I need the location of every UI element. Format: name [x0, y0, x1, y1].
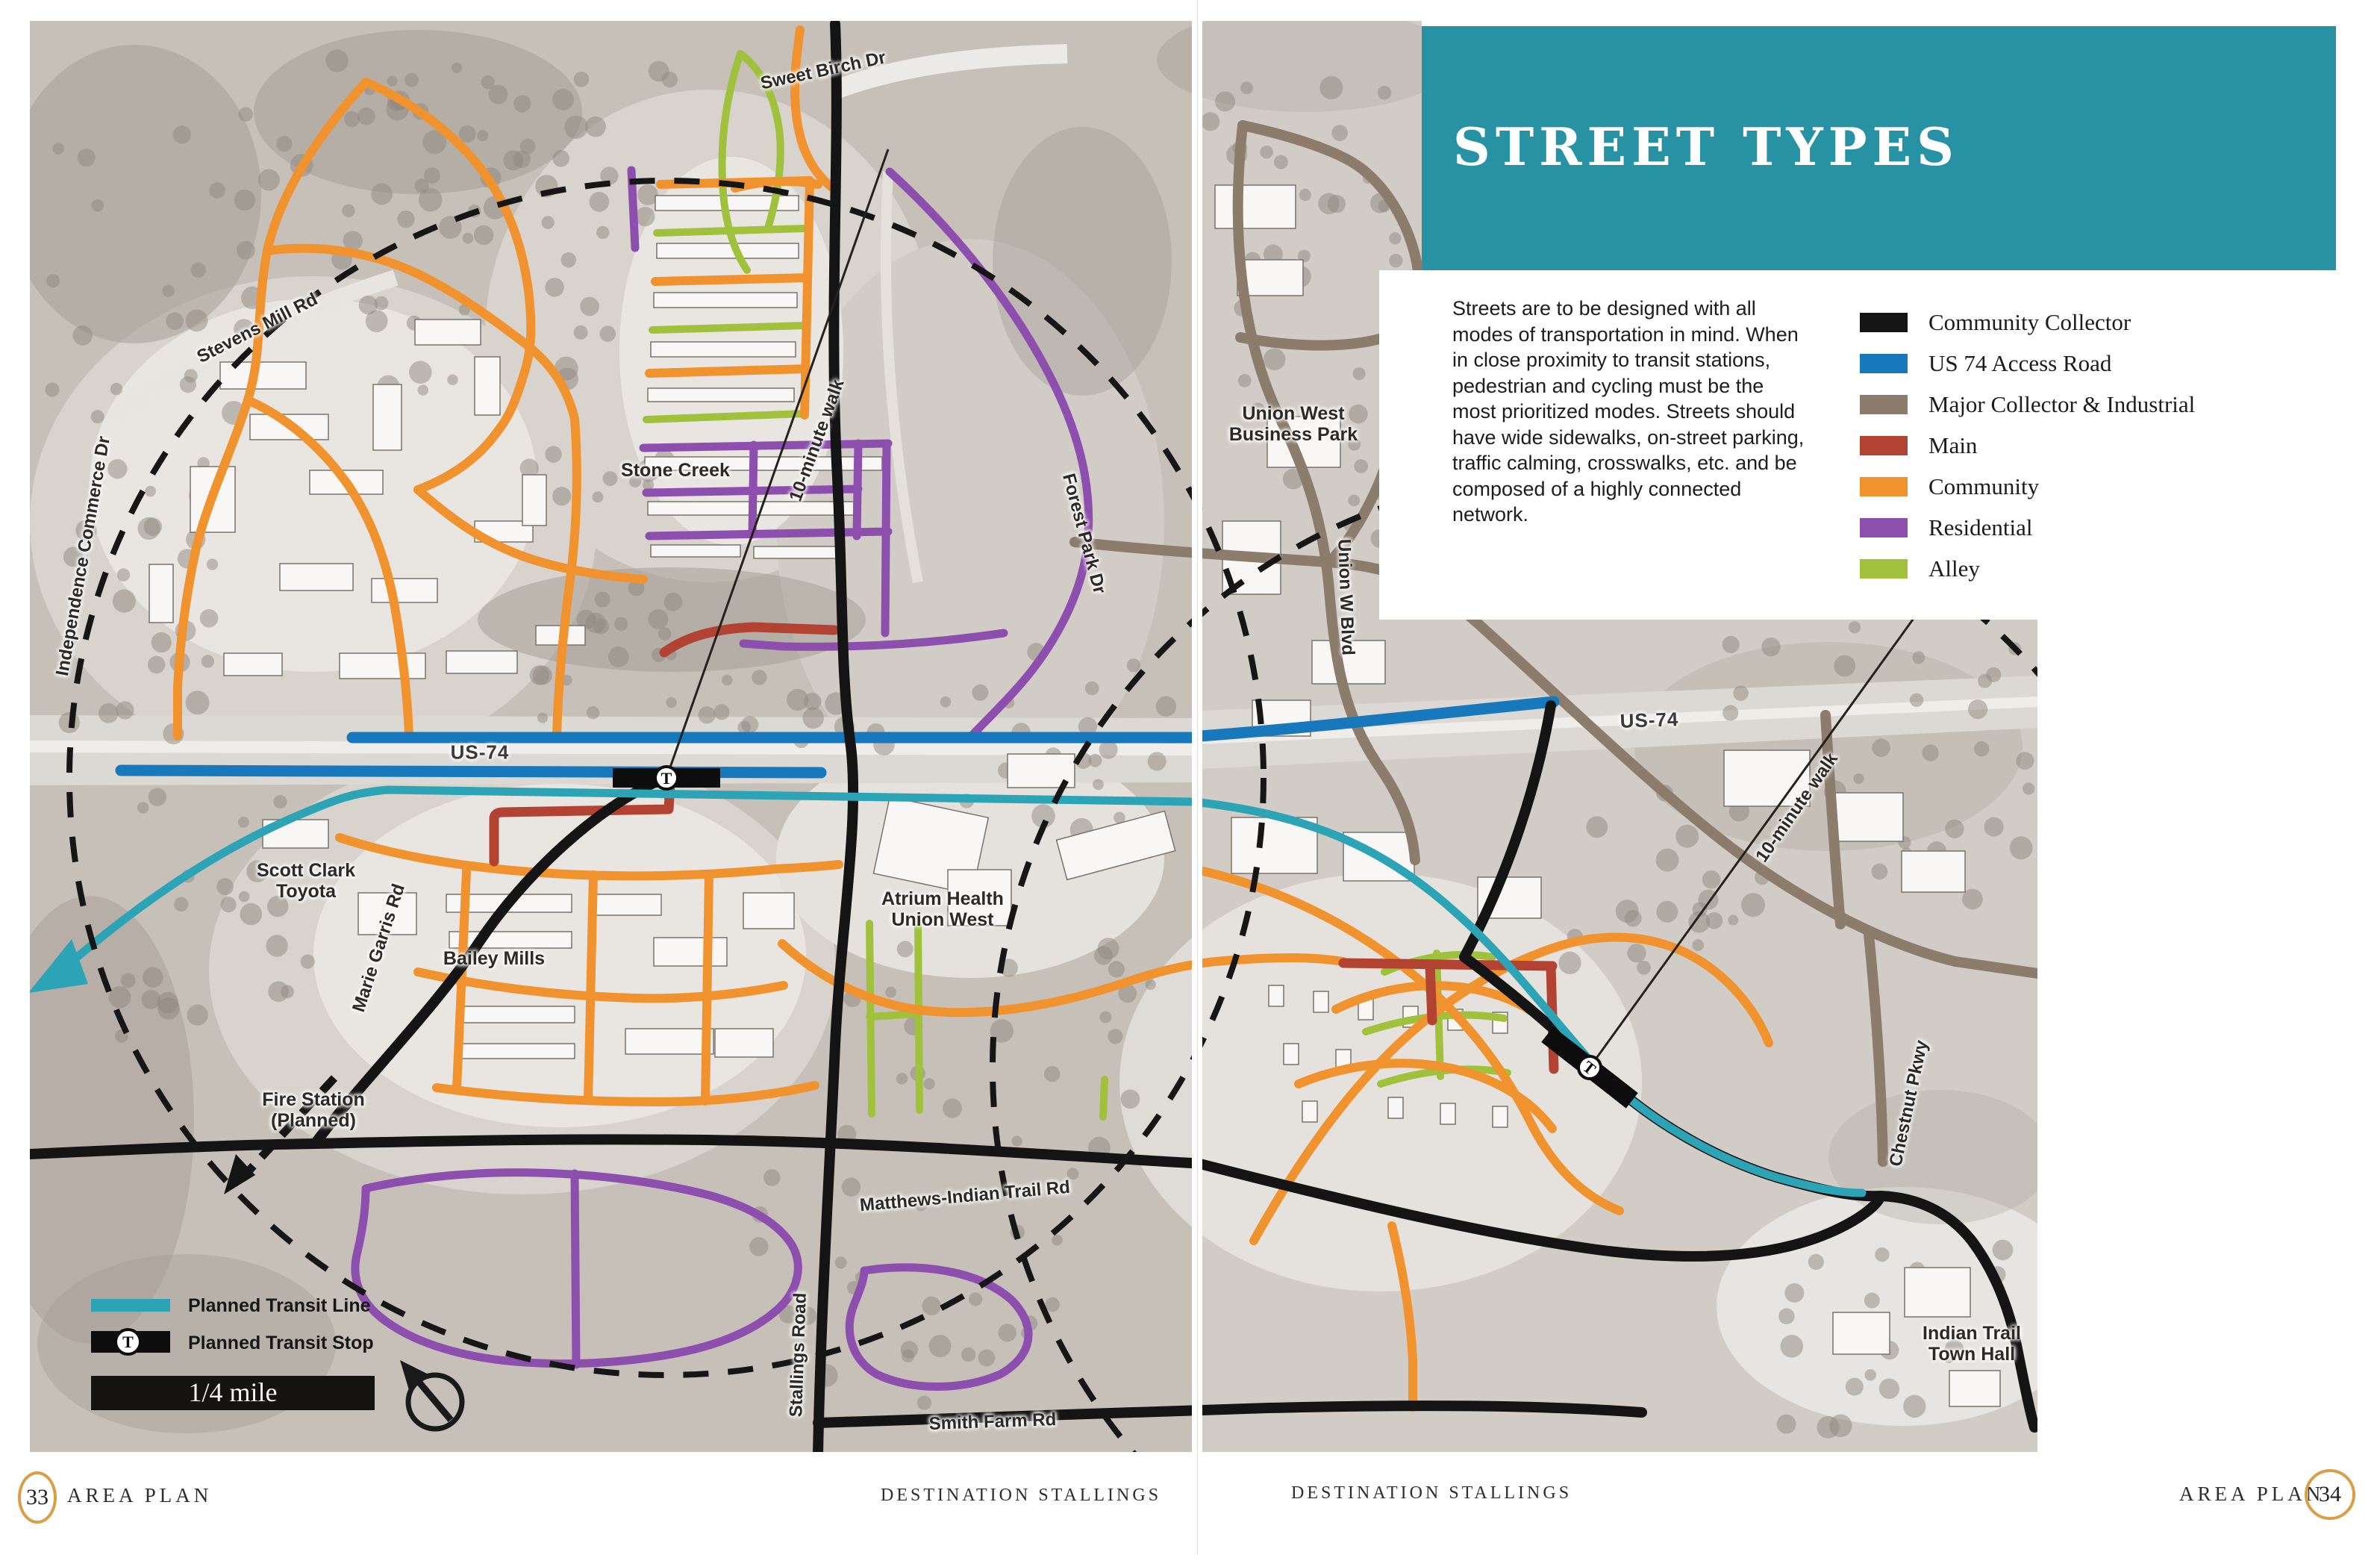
map-label: Indian TrailTown Hall — [1923, 1323, 2021, 1365]
header-panel: STREET TYPES — [1422, 26, 2336, 270]
area-plan-spread: { "header": { "title": "STREET TYPES", "… — [0, 0, 2380, 1555]
legend-swatch — [1860, 518, 1908, 537]
footer-right-label: AREA PLAN — [2179, 1483, 2324, 1506]
map-label: Smith Farm Rd — [928, 1409, 1057, 1435]
legend-item-main: Main — [1860, 425, 2195, 466]
page-number-right: 34 — [2305, 1469, 2355, 1520]
legend-item-alley: Alley — [1860, 548, 2195, 589]
legend-swatch — [1860, 313, 1908, 332]
page-gutter — [1192, 0, 1202, 1555]
page-title: STREET TYPES — [1453, 117, 1959, 178]
transit-stop-label: Planned Transit Stop — [188, 1333, 374, 1354]
page-number-left: 33 — [18, 1471, 57, 1524]
transit-line-label: Planned Transit Line — [188, 1295, 371, 1317]
legend-label: Major Collector & Industrial — [1928, 391, 2195, 418]
legend-label: Alley — [1928, 555, 1980, 582]
map-label: Union W Blvd — [1333, 539, 1358, 656]
scale-bar: 1/4 mile — [91, 1376, 375, 1410]
transit-stop-icon: T — [114, 1328, 142, 1356]
legend-item-community: Community — [1860, 466, 2195, 507]
footer-center-left: DESTINATION STALLINGS — [881, 1486, 1161, 1506]
legend-item-us74: US 74 Access Road — [1860, 343, 2195, 384]
map-label: US-74 — [1620, 708, 1679, 733]
legend-label: US 74 Access Road — [1928, 350, 2111, 377]
legend-swatch — [1860, 395, 1908, 414]
map-label: Fire Station(Planned) — [262, 1089, 365, 1131]
description-paragraph: Streets are to be designed with all mode… — [1452, 296, 1809, 528]
legend-swatch — [1860, 436, 1908, 455]
map-label: Atrium HealthUnion West — [881, 888, 1004, 930]
street-type-legend: Community CollectorUS 74 Access RoadMajo… — [1860, 302, 2195, 589]
map-label: Stallings Road — [786, 1292, 811, 1418]
footer-left-label: AREA PLAN — [67, 1484, 212, 1507]
transit-stop-icon: T — [613, 767, 720, 789]
legend-item-major: Major Collector & Industrial — [1860, 384, 2195, 425]
map-label: Scott ClarkToyota — [257, 860, 355, 902]
legend-label: Community Collector — [1928, 309, 2131, 336]
transit-line-swatch — [91, 1299, 170, 1312]
map-label: Stone Creek — [621, 460, 730, 481]
legend-label: Residential — [1928, 514, 2032, 541]
footer-center-right: DESTINATION STALLINGS — [1291, 1483, 1572, 1503]
legend-swatch — [1860, 559, 1908, 579]
legend-swatch — [1860, 477, 1908, 496]
svg-text:T: T — [661, 769, 672, 788]
legend-label: Main — [1928, 432, 1977, 459]
legend-label: Community — [1928, 473, 2039, 500]
map-label: Union WestBusiness Park — [1229, 403, 1358, 445]
transit-stop-swatch: T — [91, 1331, 170, 1353]
legend-swatch — [1860, 354, 1908, 373]
map-label: US-74 — [451, 741, 510, 764]
legend-item-collector: Community Collector — [1860, 302, 2195, 343]
map-label: Bailey Mills — [443, 948, 545, 969]
legend-item-residential: Residential — [1860, 507, 2195, 548]
